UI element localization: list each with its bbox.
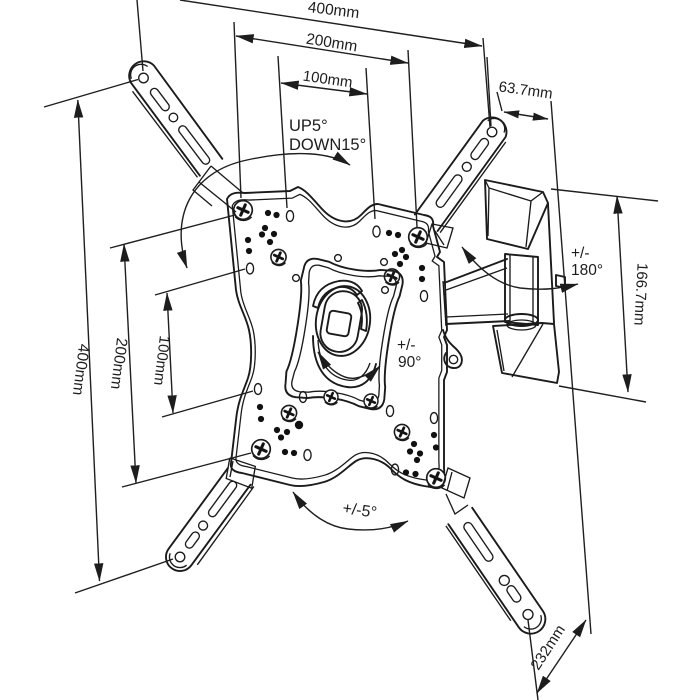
svg-text:+/-: +/- [571,245,590,262]
svg-text:166.7mm: 166.7mm [630,263,650,326]
svg-text:+/-: +/- [397,337,416,354]
svg-text:DOWN15°: DOWN15° [289,136,366,154]
svg-text:90°: 90° [398,354,421,371]
svg-text:UP5°: UP5° [289,117,328,135]
svg-text:180°: 180° [571,262,603,279]
